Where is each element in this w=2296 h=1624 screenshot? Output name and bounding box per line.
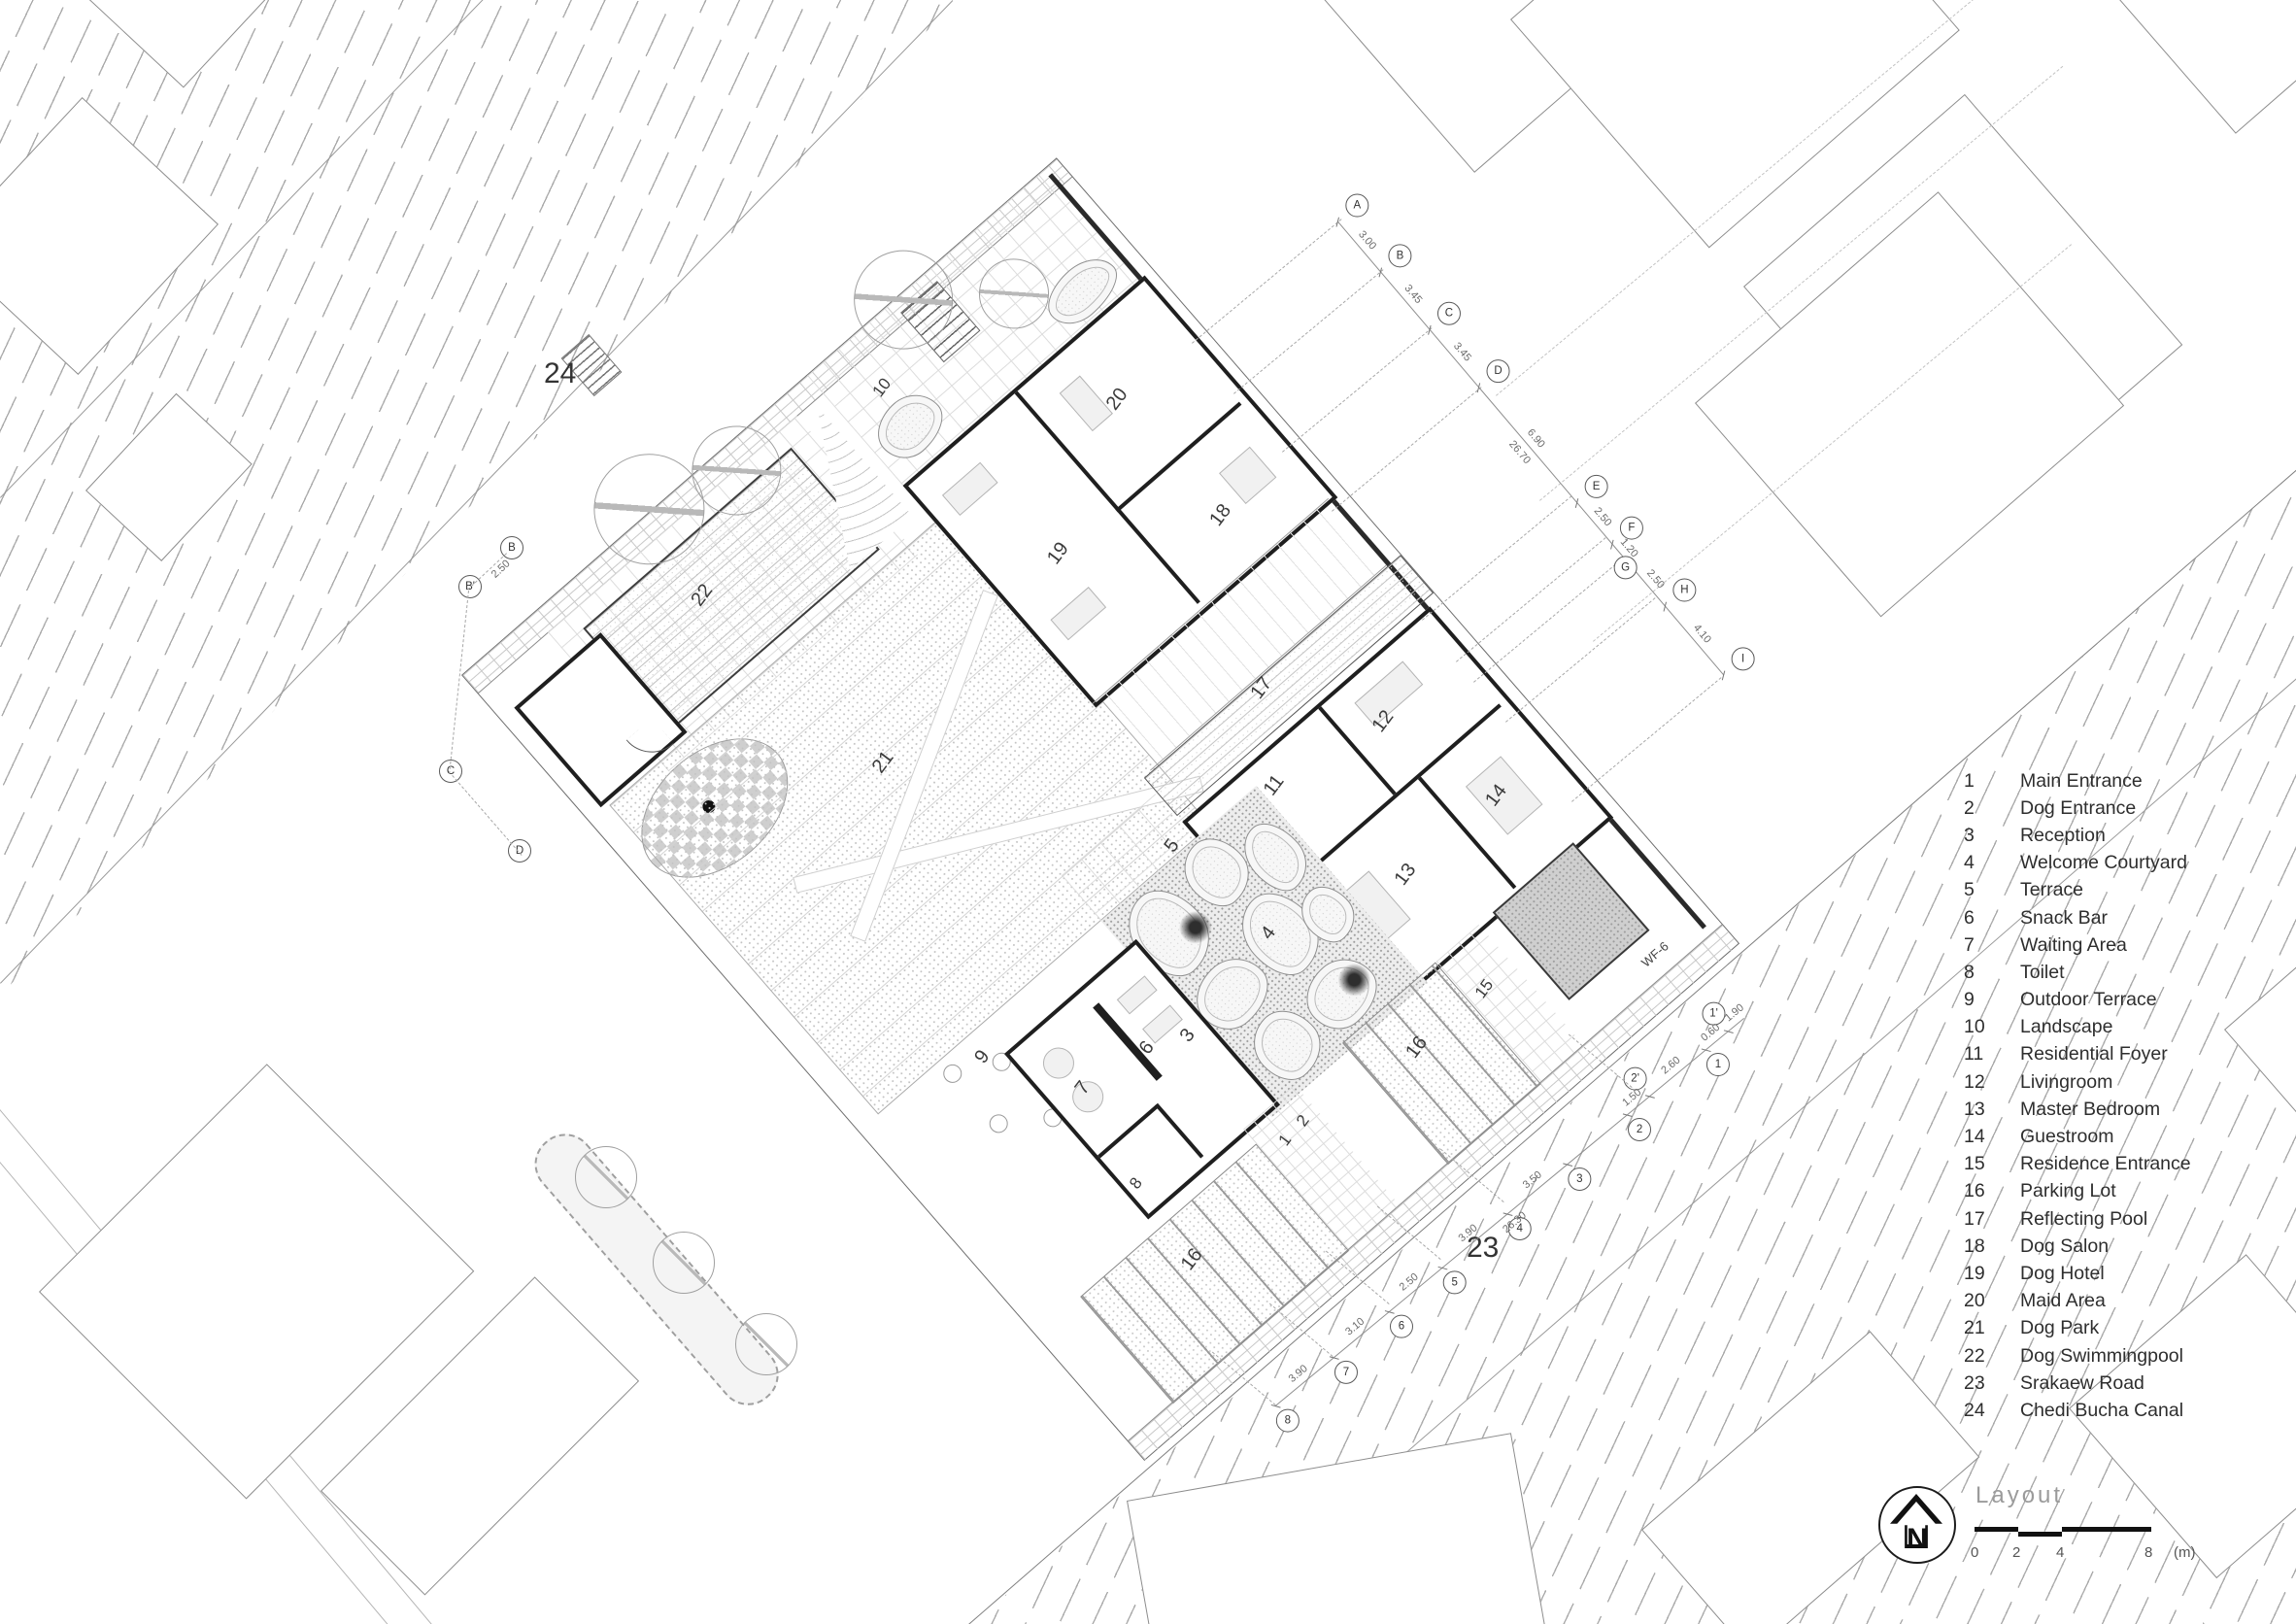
grid-bubble-7: 7 — [1334, 1361, 1358, 1384]
grid-bubble-I: I — [1732, 647, 1755, 670]
scale-tick-2: 2 — [2012, 1544, 2020, 1561]
grid-bubble-A: A — [1345, 194, 1368, 218]
context-building — [2069, 0, 2296, 134]
legend-row: 21Dog Park — [1964, 1315, 2284, 1342]
legend-row: 9Outdoor Terrace — [1964, 987, 2284, 1014]
legend-row: 3Reception — [1964, 822, 2284, 849]
grid-bubble-B: B — [1388, 244, 1411, 267]
legend-row: 24Chedi Bucha Canal — [1964, 1397, 2284, 1424]
legend-row: 7Waiting Area — [1964, 931, 2284, 959]
dim-text: 3.45 — [1401, 283, 1424, 306]
dim-text: 3.45 — [1451, 340, 1473, 363]
grid-bubble-2: 2 — [1628, 1118, 1651, 1141]
legend-row: 5Terrace — [1964, 877, 2284, 904]
grid-bubble-1: 1 — [1706, 1053, 1730, 1076]
dim-text: 2.50 — [1592, 505, 1614, 528]
grid-bubble-F: F — [1620, 517, 1643, 540]
grid-bubble-8: 8 — [1276, 1409, 1300, 1433]
dim-text: 3.00 — [1356, 228, 1378, 252]
scale-tick-0: 0 — [1971, 1544, 1978, 1561]
legend-row: 2Dog Entrance — [1964, 795, 2284, 822]
grid-bubble-3: 3 — [1568, 1167, 1591, 1191]
grid-bubble-G: G — [1614, 556, 1638, 579]
scale-unit: (m) — [2174, 1544, 2196, 1561]
north-arrow-icon: N — [1878, 1486, 1956, 1564]
legend-row: 15Residence Entrance — [1964, 1151, 2284, 1178]
drawing-title: Layout — [1975, 1482, 2063, 1509]
grid-bubble-E: E — [1585, 475, 1608, 498]
legend-row: 14Guestroom — [1964, 1123, 2284, 1150]
legend-row: 13Master Bedroom — [1964, 1096, 2284, 1123]
dim-text: 4.10 — [1691, 623, 1713, 646]
tree-icon — [653, 1232, 715, 1294]
north-letter: N — [1907, 1523, 1928, 1556]
legend-row: 19Dog Hotel — [1964, 1260, 2284, 1287]
legend-row: 18Dog Salon — [1964, 1233, 2284, 1260]
dim-total: 26.70 — [1506, 438, 1533, 466]
legend-row: 12Livingroom — [1964, 1068, 2284, 1096]
scale-tick-8: 8 — [2144, 1544, 2152, 1561]
grid-bubble-5: 5 — [1443, 1270, 1467, 1294]
legend-row: 23Srakaew Road — [1964, 1370, 2284, 1397]
tree-icon — [575, 1146, 637, 1208]
legend-row: 22Dog Swimmingpool — [1964, 1342, 2284, 1370]
grid-bubble-6: 6 — [1390, 1315, 1413, 1338]
legend-row: 4Welcome Courtyard — [1964, 850, 2284, 877]
legend-row: 8Toilet — [1964, 959, 2284, 986]
legend-row: 20Maid Area — [1964, 1288, 2284, 1315]
legend: 1Main Entrance 2Dog Entrance 3Reception … — [1964, 767, 2284, 1425]
grid-bubble-H: H — [1672, 579, 1696, 602]
legend-row: 10Landscape — [1964, 1014, 2284, 1041]
dim-text: 6.90 — [1525, 426, 1547, 450]
dim-text-west: 2.50 — [490, 558, 513, 580]
site-plan-sheet: 22 21 20 19 18 17 11 12 13 14 5 4 9 7 6 … — [0, 0, 2296, 1624]
scale-tick-4: 4 — [2056, 1544, 2064, 1561]
legend-row: 16Parking Lot — [1964, 1178, 2284, 1205]
grid-bubble-C: C — [1437, 302, 1461, 325]
grid-bubble-D: D — [1487, 359, 1510, 383]
legend-row: 6Snack Bar — [1964, 904, 2284, 931]
tree-icon — [735, 1313, 797, 1375]
canal-area-label: 24 — [544, 357, 576, 390]
legend-row: 17Reflecting Pool — [1964, 1205, 2284, 1233]
dim-text: 2.50 — [1644, 567, 1667, 591]
legend-row: 1Main Entrance — [1964, 767, 2284, 795]
legend-row: 11Residential Foyer — [1964, 1041, 2284, 1068]
